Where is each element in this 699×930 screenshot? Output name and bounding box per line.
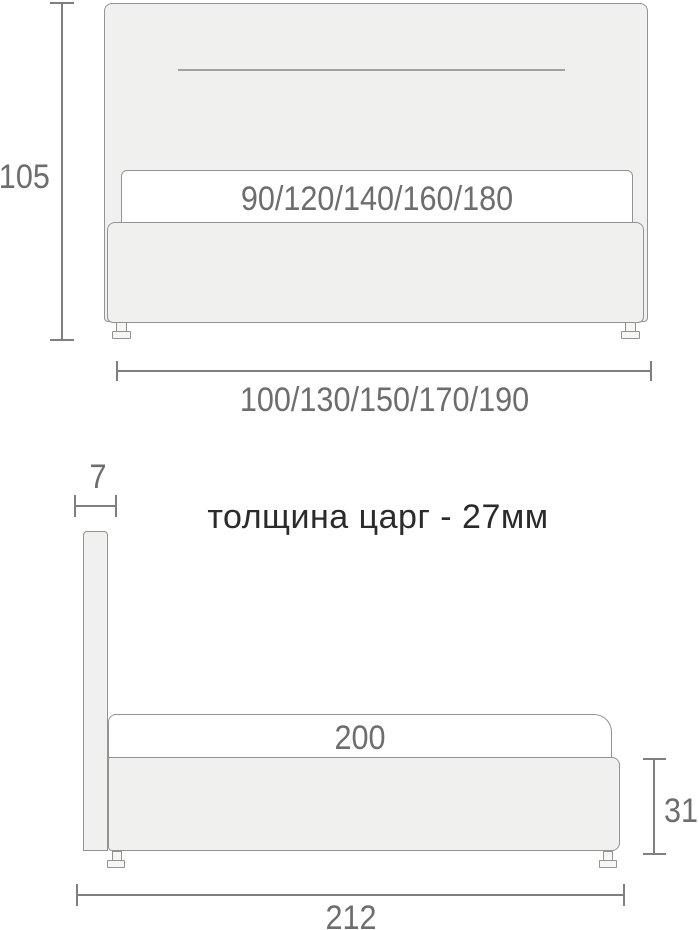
frame-height-line: [653, 759, 655, 855]
front-right-leg-foot: [621, 331, 640, 339]
height-dim-line: [61, 3, 63, 340]
length-dim-line: [77, 894, 625, 896]
thickness-dim-line: [75, 505, 117, 507]
overall-width-label: 100/130/150/170/190: [144, 383, 626, 417]
frame-height-label: 31: [661, 794, 699, 828]
note-frame-thickness: толщина царг - 27мм: [178, 500, 578, 534]
front-headboard-seam: [178, 69, 565, 71]
mattress-width-label: 90/120/140/160/180: [148, 182, 607, 216]
height-dim-tick-bottom: [50, 339, 74, 341]
width-dim-line: [117, 370, 652, 372]
overall-length-label: 212: [104, 901, 597, 930]
height-dimension-label: 105: [0, 160, 49, 194]
length-dim-tick-right: [623, 884, 625, 906]
side-base: [108, 757, 620, 851]
side-left-leg-foot: [107, 860, 125, 868]
width-dim-tick-right: [650, 361, 652, 381]
side-right-leg-foot: [599, 860, 617, 868]
front-base: [107, 222, 644, 323]
frame-height-tick-bottom: [643, 853, 666, 855]
bed-dimensions-diagram: 90/120/140/160/180 105 100/130/150/170/1…: [0, 0, 699, 930]
side-headboard: [83, 531, 108, 851]
front-mattress: 90/120/140/160/180: [121, 170, 633, 228]
mattress-length-label: 200: [134, 721, 586, 755]
front-left-leg-foot: [112, 331, 131, 339]
side-mattress: 200: [108, 714, 612, 758]
headboard-thickness-label: 7: [78, 460, 118, 494]
thickness-dim-tick-right: [115, 495, 117, 517]
